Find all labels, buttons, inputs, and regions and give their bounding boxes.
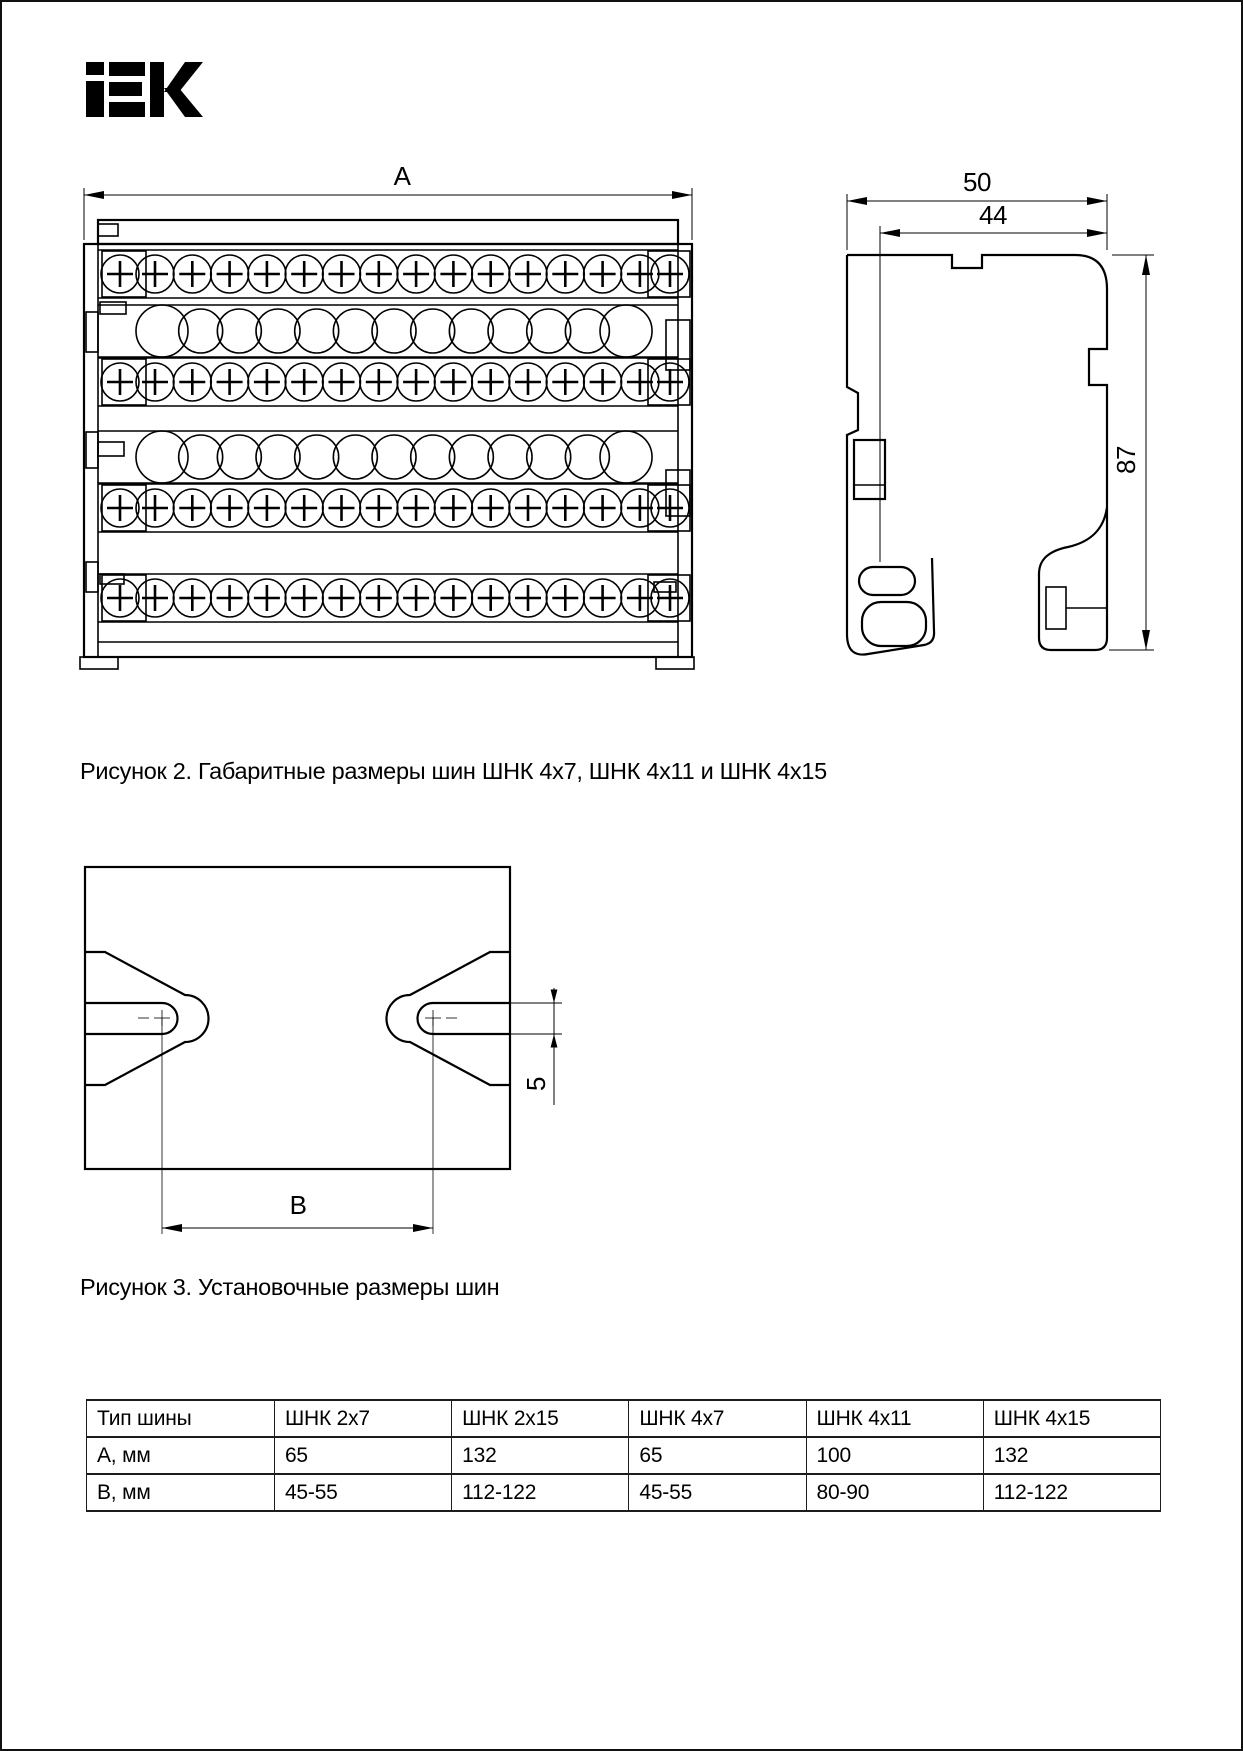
wire-hole-icon — [565, 435, 609, 479]
screw-icon — [472, 579, 510, 617]
screw-icon — [472, 489, 510, 527]
table-cell: В, мм — [87, 1474, 275, 1511]
screw-icon — [584, 255, 622, 293]
wire-hole-icon — [333, 435, 377, 479]
screw-icon — [651, 255, 689, 293]
hole-row — [98, 305, 678, 357]
table-cell: 112-122 — [983, 1474, 1160, 1511]
screw-icon — [211, 579, 249, 617]
figure2-caption: Рисунок 2. Габаритные размеры шин ШНК 4х… — [80, 758, 827, 785]
dim-label-a: A — [394, 161, 412, 191]
table-header-cell: ШНК 4х11 — [806, 1400, 983, 1437]
wire-hole-icon — [179, 435, 223, 479]
screw-icon — [173, 489, 211, 527]
screw-icon — [136, 489, 174, 527]
screw-icon — [651, 363, 689, 401]
screw-icon — [323, 579, 361, 617]
screw-icon — [472, 255, 510, 293]
wire-hole-icon — [372, 435, 416, 479]
dimension-87: 87 — [1109, 255, 1154, 650]
screw-icon — [101, 255, 139, 293]
table-cell: 65 — [629, 1437, 806, 1474]
screw-icon — [136, 579, 174, 617]
screw-row — [98, 484, 690, 532]
screw-icon — [546, 579, 584, 617]
screw-icon — [285, 489, 323, 527]
screw-icon — [397, 489, 435, 527]
screw-icon — [360, 489, 398, 527]
screw-icon — [651, 579, 689, 617]
dimension-a: A — [84, 161, 692, 240]
screw-icon — [360, 255, 398, 293]
screw-icon — [323, 489, 361, 527]
figure3-view: B 5 — [85, 867, 562, 1234]
table-header-cell: Тип шины — [87, 1400, 275, 1437]
table-header-row: Тип шины ШНК 2х7 ШНК 2х15 ШНК 4х7 ШНК 4х… — [87, 1400, 1161, 1437]
terminal-rows — [98, 250, 690, 622]
screw-row — [98, 250, 690, 298]
dimension-b: B — [162, 1190, 433, 1228]
wire-hole-icon — [217, 435, 261, 479]
iek-logo — [86, 62, 203, 117]
screw-icon — [211, 489, 249, 527]
wire-hole-icon — [411, 309, 455, 353]
wire-hole-icon — [295, 435, 339, 479]
table-row: В, мм 45-55 112-122 45-55 80-90 112-122 — [87, 1474, 1161, 1511]
screw-icon — [621, 579, 659, 617]
screw-icon — [173, 255, 211, 293]
table-cell: 132 — [983, 1437, 1160, 1474]
screw-icon — [285, 579, 323, 617]
dim-label-50: 50 — [963, 167, 991, 197]
table-cell: А, мм — [87, 1437, 275, 1474]
screw-icon — [211, 363, 249, 401]
screw-icon — [434, 579, 472, 617]
screw-icon — [397, 579, 435, 617]
wire-hole-icon — [449, 309, 493, 353]
screw-icon — [621, 255, 659, 293]
wire-hole-icon — [600, 305, 652, 357]
table-cell: 100 — [806, 1437, 983, 1474]
screw-icon — [101, 363, 139, 401]
screw-icon — [136, 255, 174, 293]
wire-hole-icon — [136, 431, 188, 483]
wire-hole-icon — [179, 309, 223, 353]
screw-icon — [397, 363, 435, 401]
screw-icon — [360, 579, 398, 617]
datasheet-page: A — [0, 0, 1243, 1751]
wire-hole-icon — [295, 309, 339, 353]
wire-hole-icon — [600, 431, 652, 483]
screw-icon — [101, 489, 139, 527]
wire-hole-icon — [449, 435, 493, 479]
wire-hole-icon — [488, 309, 532, 353]
screw-icon — [248, 579, 286, 617]
dimension-50: 50 — [847, 167, 1107, 250]
dim-label-87: 87 — [1111, 446, 1141, 474]
dim-label-5: 5 — [521, 1077, 551, 1091]
screw-icon — [323, 363, 361, 401]
table-cell: 132 — [452, 1437, 629, 1474]
screw-icon — [546, 255, 584, 293]
wire-hole-icon — [256, 309, 300, 353]
table-header-cell: ШНК 2х7 — [274, 1400, 451, 1437]
screw-icon — [173, 363, 211, 401]
screw-icon — [285, 255, 323, 293]
screw-icon — [584, 363, 622, 401]
screw-icon — [546, 489, 584, 527]
table-cell: 112-122 — [452, 1474, 629, 1511]
dim-label-44: 44 — [979, 200, 1007, 230]
screw-icon — [248, 489, 286, 527]
wire-hole-icon — [527, 435, 571, 479]
wire-hole-icon — [333, 309, 377, 353]
screw-icon — [434, 255, 472, 293]
screw-icon — [211, 255, 249, 293]
wire-hole-icon — [136, 305, 188, 357]
screw-row — [98, 358, 690, 406]
screw-icon — [285, 363, 323, 401]
dimensions-table: Тип шины ШНК 2х7 ШНК 2х15 ШНК 4х7 ШНК 4х… — [86, 1399, 1161, 1512]
screw-icon — [584, 579, 622, 617]
figure3-caption: Рисунок 3. Установочные размеры шин — [80, 1274, 499, 1301]
table-cell: 80-90 — [806, 1474, 983, 1511]
wire-hole-icon — [565, 309, 609, 353]
table-header-cell: ШНК 2х15 — [452, 1400, 629, 1437]
figure2-front-view: A — [80, 161, 694, 669]
screw-icon — [136, 363, 174, 401]
screw-icon — [248, 363, 286, 401]
table-cell: 45-55 — [629, 1474, 806, 1511]
screw-icon — [509, 255, 547, 293]
table-header-cell: ШНК 4х7 — [629, 1400, 806, 1437]
screw-icon — [434, 363, 472, 401]
screw-icon — [397, 255, 435, 293]
wire-hole-icon — [527, 309, 571, 353]
table-cell: 65 — [274, 1437, 451, 1474]
dimension-5: 5 — [510, 988, 562, 1105]
screw-icon — [360, 363, 398, 401]
screw-icon — [434, 489, 472, 527]
table-header-cell: ШНК 4х15 — [983, 1400, 1160, 1437]
wire-hole-icon — [256, 435, 300, 479]
screw-icon — [472, 363, 510, 401]
screw-icon — [173, 579, 211, 617]
table-cell: 45-55 — [274, 1474, 451, 1511]
screw-icon — [509, 579, 547, 617]
wire-hole-icon — [411, 435, 455, 479]
screw-icon — [621, 489, 659, 527]
screw-icon — [509, 489, 547, 527]
screw-icon — [323, 255, 361, 293]
screw-icon — [509, 363, 547, 401]
wire-hole-icon — [488, 435, 532, 479]
screw-icon — [248, 255, 286, 293]
screw-row — [98, 574, 690, 622]
screw-icon — [584, 489, 622, 527]
hole-row — [98, 431, 678, 483]
wire-hole-icon — [217, 309, 261, 353]
screw-icon — [651, 489, 689, 527]
wire-hole-icon — [372, 309, 416, 353]
figure2-side-view: 50 44 87 — [847, 167, 1154, 655]
dim-label-b: B — [290, 1190, 307, 1220]
screw-icon — [546, 363, 584, 401]
screw-icon — [621, 363, 659, 401]
table-row: А, мм 65 132 65 100 132 — [87, 1437, 1161, 1474]
